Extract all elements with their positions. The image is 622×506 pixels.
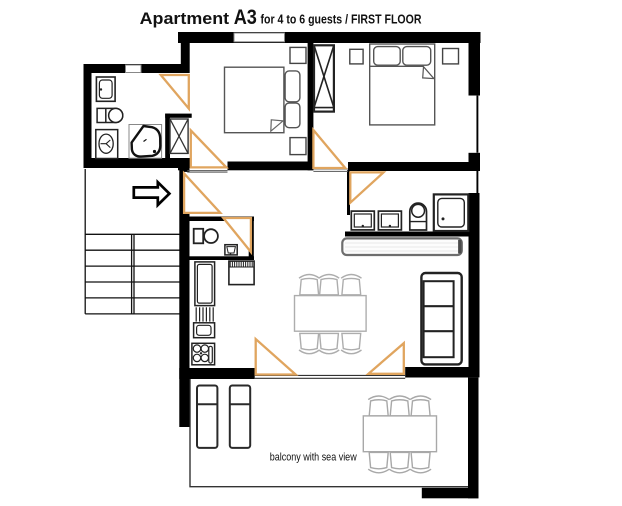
svg-text:A3: A3 bbox=[234, 5, 257, 29]
svg-text:for 4 to 6 guests / FIRST FLOO: for 4 to 6 guests / FIRST FLOOR bbox=[261, 13, 422, 27]
svg-text:balcony with sea view: balcony with sea view bbox=[270, 452, 357, 464]
svg-text:Apartment: Apartment bbox=[140, 9, 230, 28]
